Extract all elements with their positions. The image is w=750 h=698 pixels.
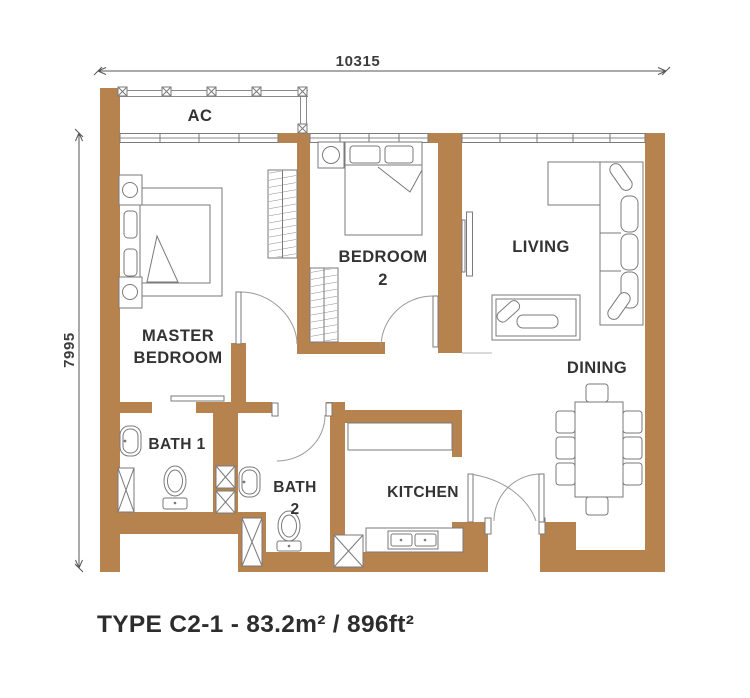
- bedroom2-wardrobe: [310, 268, 338, 342]
- dimension-top-value: 10315: [336, 53, 381, 70]
- kitchen-door: [468, 474, 536, 522]
- master-nightstand-top: [119, 175, 142, 205]
- label-ac: AC: [188, 107, 213, 125]
- wall-bedroom2-bottom: [297, 342, 385, 354]
- wall-left: [100, 88, 120, 572]
- dimension-left-value: 7995: [61, 332, 78, 368]
- label-bath2-line1: BATH: [273, 479, 317, 496]
- label-kitchen: KITCHEN: [387, 484, 459, 501]
- master-nightstand-bottom: [119, 277, 142, 308]
- ac-posts: [118, 87, 307, 133]
- bath2-door: [272, 403, 332, 461]
- master-door: [236, 292, 297, 344]
- wall-kitchen-top: [335, 410, 462, 423]
- bath1-toilet: [163, 466, 187, 509]
- label-dining: DINING: [567, 359, 627, 377]
- wall-bath-top-c: [246, 402, 272, 413]
- wall-bedroom2-left: [297, 143, 310, 348]
- wall-bottom-a: [266, 552, 345, 572]
- bath2-sink: [239, 467, 260, 497]
- dimension-left: 7995: [61, 129, 83, 572]
- bedroom2-bed: [345, 142, 422, 235]
- label-bedroom2-line2: 2: [378, 271, 388, 289]
- wall-master-east: [231, 343, 246, 413]
- ac-ledge: [118, 87, 308, 133]
- dining-table: [575, 402, 623, 497]
- bedroom2-nightstand: [318, 142, 344, 168]
- wall-bottom-b: [576, 550, 665, 572]
- bath1-sink: [120, 426, 141, 456]
- label-master-bedroom-line1: MASTER: [142, 327, 214, 345]
- wall-bath-top-b: [196, 402, 231, 413]
- kitchen-sink: [388, 531, 438, 549]
- bedroom2-door: [381, 296, 438, 347]
- wall-top-seg2: [428, 133, 462, 143]
- dimension-top: 10315: [94, 53, 670, 75]
- dining-set: [556, 384, 642, 515]
- master-wardrobe: [268, 170, 297, 258]
- window-master: [120, 134, 278, 143]
- bath1-sliding-door: [171, 396, 224, 401]
- shaft-bath1: [118, 468, 134, 512]
- shaft-divider-1: [216, 466, 235, 488]
- floor-plan-page: AC MASTER BEDROOM BEDROOM 2 LIVING DININ…: [0, 0, 750, 698]
- tv-console: [462, 212, 473, 276]
- window-bedroom2: [310, 134, 428, 143]
- coffee-bench: [492, 295, 580, 340]
- label-bath2-line2: 2: [290, 501, 299, 518]
- wall-kitchen-stub: [452, 423, 462, 457]
- windows: [120, 134, 645, 143]
- label-bath1: BATH 1: [148, 436, 205, 453]
- shaft-bath2: [242, 518, 262, 566]
- wall-bath2-kitchen: [330, 413, 345, 554]
- shaft-divider-2: [216, 491, 235, 513]
- wall-right: [645, 133, 665, 572]
- floor-plan-canvas: AC MASTER BEDROOM BEDROOM 2 LIVING DININ…: [0, 0, 750, 698]
- plan-title: TYPE C2-1 - 83.2m² / 896ft²: [97, 611, 414, 638]
- wall-bath1-bottom: [100, 512, 238, 534]
- entry-door: [485, 474, 545, 534]
- label-bedroom2-line1: BEDROOM: [339, 248, 428, 266]
- wall-top-seg1: [278, 133, 310, 143]
- shaft-kitchen: [334, 535, 363, 567]
- wall-bath-top-a: [120, 402, 152, 413]
- label-living: LIVING: [512, 238, 569, 256]
- label-master-bedroom-line2: BEDROOM: [134, 349, 223, 367]
- window-living: [462, 134, 645, 143]
- wall-bedroom2-right: [438, 143, 462, 353]
